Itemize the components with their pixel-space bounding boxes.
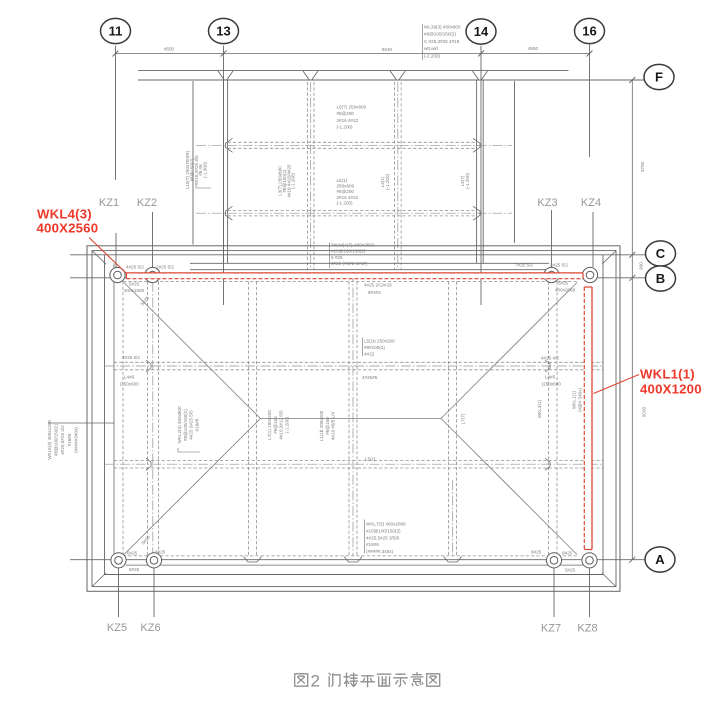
svg-text:3700: 3700 bbox=[640, 161, 645, 172]
svg-text:400X1200: 400X1200 bbox=[640, 382, 702, 397]
svg-text:4#10,3#12 5/5: 4#10,3#12 5/5 bbox=[279, 410, 284, 440]
svg-text:(-1.200): (-1.200) bbox=[385, 173, 390, 190]
svg-text:KZ1: KZ1 bbox=[99, 197, 119, 209]
svg-text:L4#5: L4#5 bbox=[545, 375, 556, 380]
svg-text:400X2560: 400X2560 bbox=[37, 220, 99, 235]
svg-text:2#25 5/2: 2#25 5/2 bbox=[550, 262, 568, 267]
svg-text:(-1.200): (-1.200) bbox=[465, 172, 470, 189]
svg-text:#6@150: #6@150 bbox=[273, 416, 278, 434]
svg-text:8#4#2: 8#4#2 bbox=[368, 290, 381, 295]
svg-text:4#25 4/2: 4#25 4/2 bbox=[541, 356, 559, 361]
svg-text:4550: 4550 bbox=[164, 47, 175, 52]
svg-text:wtt.wkl: wtt.wkl bbox=[424, 46, 438, 51]
svg-text:250x600: 250x600 bbox=[337, 184, 355, 189]
svg-text:C: C bbox=[656, 246, 666, 261]
svg-text:9200: 9200 bbox=[642, 406, 647, 417]
svg-text:WKL1(1): WKL1(1) bbox=[572, 390, 577, 409]
svg-text:WKL1(1): WKL1(1) bbox=[640, 367, 695, 382]
svg-text:#16#6: #16#6 bbox=[194, 418, 199, 431]
svg-text:4550: 4550 bbox=[528, 46, 539, 51]
svg-text:2: 2 bbox=[311, 672, 320, 691]
svg-text:4#25 3#25 5/5: 4#25 3#25 5/5 bbox=[189, 410, 194, 440]
svg-text:C.#25,3#25 4#16: C.#25,3#25 4#16 bbox=[424, 39, 460, 44]
svg-text:L5(1): L5(1) bbox=[337, 178, 348, 183]
svg-text:(-2.200): (-2.200) bbox=[424, 53, 441, 58]
svg-text:KZ4: KZ4 bbox=[581, 197, 601, 209]
svg-text:L5(1b 250x200: L5(1b 250x200 bbox=[364, 339, 395, 344]
svg-text:#10@100/150(2): #10@100/150(2) bbox=[331, 249, 366, 254]
svg-text:400x1560: 400x1560 bbox=[124, 288, 145, 293]
svg-text:7#25 5/2: 7#25 5/2 bbox=[515, 262, 533, 267]
svg-text:900: 900 bbox=[639, 262, 644, 270]
svg-text:4#25 2/G/#16: 4#25 2/G/#16 bbox=[364, 283, 392, 288]
svg-text:#16#6: #16#6 bbox=[67, 433, 72, 446]
svg-text:7#(4#)+(3)-400x2560: 7#(4#)+(3)-400x2560 bbox=[331, 243, 375, 248]
svg-text:(-1.200): (-1.200) bbox=[291, 172, 296, 189]
svg-text:#6@150: #6@150 bbox=[325, 417, 330, 435]
svg-text:WL39(3) 400x900: WL39(3) 400x900 bbox=[424, 25, 461, 30]
svg-text:|250x600: |250x600 bbox=[542, 382, 561, 387]
svg-text:WKL4(3): WKL4(3) bbox=[37, 206, 92, 221]
svg-text:2#25 5/2: 2#25 5/2 bbox=[156, 264, 174, 269]
svg-text:5 #25: 5 #25 bbox=[331, 255, 343, 260]
svg-text:KZ2: KZ2 bbox=[137, 197, 157, 209]
svg-text:#10@100/150(2): #10@100/150(2) bbox=[366, 528, 401, 533]
svg-text:2#16 4#22: 2#16 4#22 bbox=[337, 195, 359, 200]
svg-text:WKL2(3) 350x800: WKL2(3) 350x800 bbox=[177, 406, 182, 443]
svg-text:L7(1) 200x200: L7(1) 200x200 bbox=[267, 410, 272, 440]
svg-text:(#####,340x): (#####,340x) bbox=[366, 549, 394, 554]
svg-text:#8@100/150(2): #8@100/150(2) bbox=[54, 424, 59, 456]
svg-text:9#25 (#8#2 5#4#): 9#25 (#8#2 5#4#) bbox=[331, 261, 368, 266]
svg-text:KZ5: KZ5 bbox=[107, 622, 127, 634]
svg-text:5#25: 5#25 bbox=[558, 281, 569, 286]
svg-text:KZ3: KZ3 bbox=[537, 197, 557, 209]
svg-text:6#25: 6#25 bbox=[562, 551, 573, 556]
svg-text:L1(1b 200x200: L1(1b 200x200 bbox=[319, 410, 324, 441]
svg-text:(#####340x): (#####340x) bbox=[73, 427, 78, 453]
svg-text:9240: 9240 bbox=[382, 47, 393, 52]
svg-text:L6(7) 250x600: L6(7) 250x600 bbox=[337, 105, 367, 110]
svg-text:4#25 5/2: 4#25 5/2 bbox=[122, 355, 140, 360]
svg-text:4#10 #6/5 L/4: 4#10 #6/5 L/4 bbox=[331, 412, 336, 441]
svg-text:#8@100/150(2): #8@100/150(2) bbox=[424, 32, 456, 37]
svg-text:WKL5(3) 400x1200: WKL5(3) 400x1200 bbox=[47, 420, 52, 460]
svg-text:#16#6: #16#6 bbox=[366, 542, 379, 547]
svg-text:5#25: 5#25 bbox=[129, 281, 140, 286]
svg-text:5#25: 5#25 bbox=[129, 567, 140, 572]
svg-text:400x2060: 400x2060 bbox=[555, 288, 576, 293]
svg-text:6#25: 6#25 bbox=[127, 551, 138, 556]
svg-text:6#25: 6#25 bbox=[531, 550, 542, 555]
svg-text:KZ8: KZ8 bbox=[577, 623, 597, 635]
svg-text:(-1.200): (-1.200) bbox=[337, 125, 354, 130]
svg-text:L5(c): L5(c) bbox=[365, 457, 376, 462]
svg-text:L7(7): L7(7) bbox=[461, 413, 466, 424]
svg-text:#8@200: #8@200 bbox=[337, 111, 355, 116]
svg-text:13: 13 bbox=[216, 24, 230, 39]
svg-text:#8@100/150(2): #8@100/150(2) bbox=[183, 409, 188, 441]
svg-text:KZ6: KZ6 bbox=[140, 622, 160, 634]
svg-text:5#25: 5#25 bbox=[565, 568, 576, 573]
svg-text:A: A bbox=[655, 552, 665, 567]
svg-text:WKL3(1): WKL3(1) bbox=[537, 399, 542, 418]
svg-text:4#25#5: 4#25#5 bbox=[362, 375, 378, 380]
svg-text:4#25 5/2: 4#25 5/2 bbox=[126, 264, 144, 269]
svg-text:WKL7(3) 400x2060: WKL7(3) 400x2060 bbox=[366, 522, 406, 527]
svg-text:(#@# 340x): (#@# 340x) bbox=[578, 387, 583, 412]
svg-text:2#16 4#22: 2#16 4#22 bbox=[337, 118, 359, 123]
svg-text:B: B bbox=[656, 271, 665, 286]
svg-text:4#25 5#25 3/2: 4#25 5#25 3/2 bbox=[60, 425, 65, 455]
svg-text:|350x600: |350x600 bbox=[120, 382, 139, 387]
svg-text:(-1.200): (-1.200) bbox=[337, 200, 354, 205]
svg-text:F: F bbox=[655, 70, 663, 85]
svg-text:#8@200: #8@200 bbox=[337, 189, 355, 194]
svg-text:L4#6: L4#6 bbox=[124, 375, 135, 380]
svg-text:11: 11 bbox=[109, 24, 123, 39]
svg-text:4#25,5#25 3/5/6: 4#25,5#25 3/5/6 bbox=[366, 535, 400, 540]
svg-text:#8#100(4): #8#100(4) bbox=[364, 345, 385, 350]
svg-text:KZ7: KZ7 bbox=[541, 623, 561, 635]
svg-text:6#25: 6#25 bbox=[155, 550, 166, 555]
svg-text:(-1.300): (-1.300) bbox=[203, 161, 208, 178]
svg-text:4#22: 4#22 bbox=[364, 351, 375, 356]
svg-text:14: 14 bbox=[474, 24, 489, 39]
svg-text:16: 16 bbox=[582, 24, 596, 39]
svg-text:(-1.200): (-1.200) bbox=[284, 416, 289, 433]
